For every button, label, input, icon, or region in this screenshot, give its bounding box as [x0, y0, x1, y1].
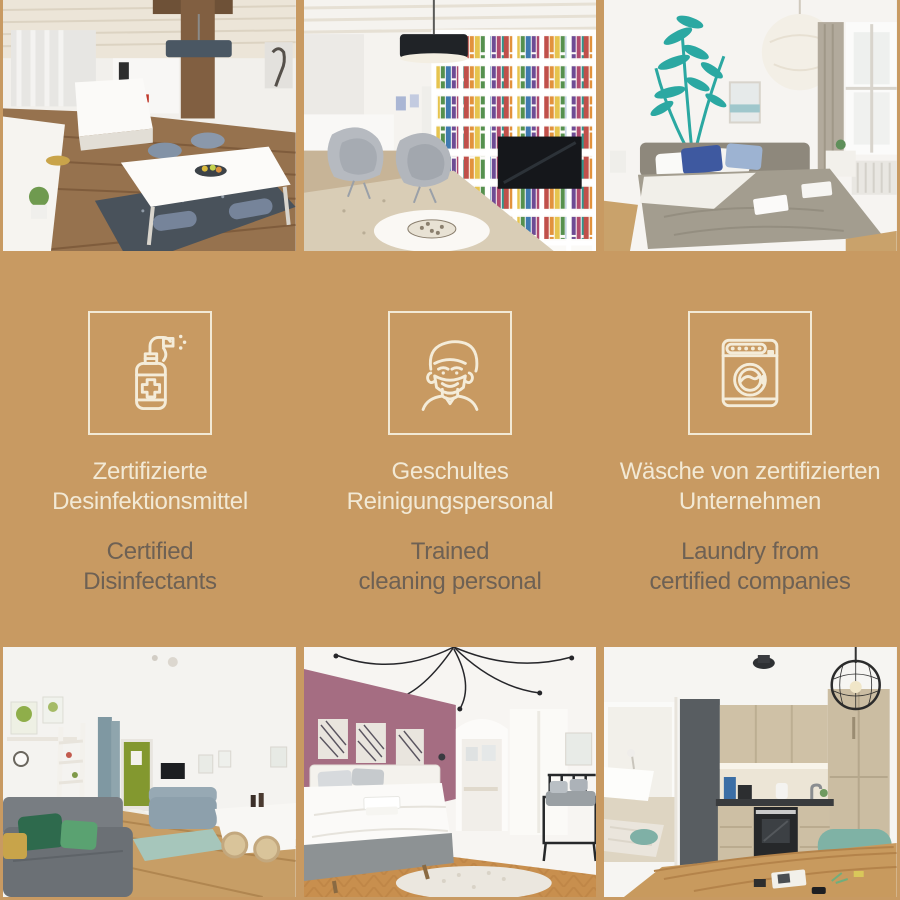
title-de-line-2: Reinigungspersonal [347, 488, 554, 515]
feature-certified-disinfectants: Zertifizierte Desinfektionsmittel Certif… [0, 311, 300, 647]
subtitle-en-line-2: cleaning personal [358, 568, 541, 595]
promo-collage: Zertifizierte Desinfektionsmittel Certif… [0, 0, 900, 900]
feature-title-de: Geschultes Reinigungspersonal [347, 457, 554, 517]
subtitle-en-line-1: Trained [411, 538, 489, 565]
photo-bedroom-purple-wall[interactable] [304, 647, 597, 897]
subtitle-en-line-2: Disinfectants [83, 568, 217, 595]
subtitle-en-line-2: certified companies [649, 568, 850, 595]
feature-title-de: Wäsche von zertifizierten Unternehmen [620, 457, 881, 517]
photo-library-lounge[interactable] [304, 0, 597, 251]
feature-title-de: Zertifizierte Desinfektionsmittel [52, 457, 248, 517]
title-de-line-2: Desinfektionsmittel [52, 488, 248, 515]
subtitle-en-line-1: Laundry from [681, 538, 819, 565]
feature-certified-laundry: Wäsche von zertifizierten Unternehmen La… [600, 311, 900, 647]
photo-grid-top [3, 0, 897, 251]
photo-kitchen-dining[interactable] [604, 647, 897, 897]
title-de-line-1: Wäsche von zertifizierten [620, 458, 881, 485]
photo-bedroom-fern-decal[interactable] [604, 0, 897, 251]
masked-cleaner-icon [388, 311, 512, 435]
feature-subtitle-en: Trained cleaning personal [358, 537, 541, 597]
photo-living-room-green-accents[interactable] [3, 647, 296, 897]
photo-open-plan-living-dining[interactable] [3, 0, 296, 251]
feature-subtitle-en: Laundry from certified companies [649, 537, 850, 597]
feature-trained-cleaning-personal: Geschultes Reinigungspersonal Trained cl… [300, 311, 600, 647]
title-de-line-2: Unternehmen [679, 488, 821, 515]
hygiene-banner: Zertifizierte Desinfektionsmittel Certif… [0, 251, 900, 647]
disinfectant-spray-icon [88, 311, 212, 435]
feature-subtitle-en: Certified Disinfectants [83, 537, 217, 597]
title-de-line-1: Zertifizierte [93, 458, 208, 485]
subtitle-en-line-1: Certified [107, 538, 194, 565]
washing-machine-icon [688, 311, 812, 435]
title-de-line-1: Geschultes [391, 458, 508, 485]
photo-grid-bottom [3, 647, 897, 897]
